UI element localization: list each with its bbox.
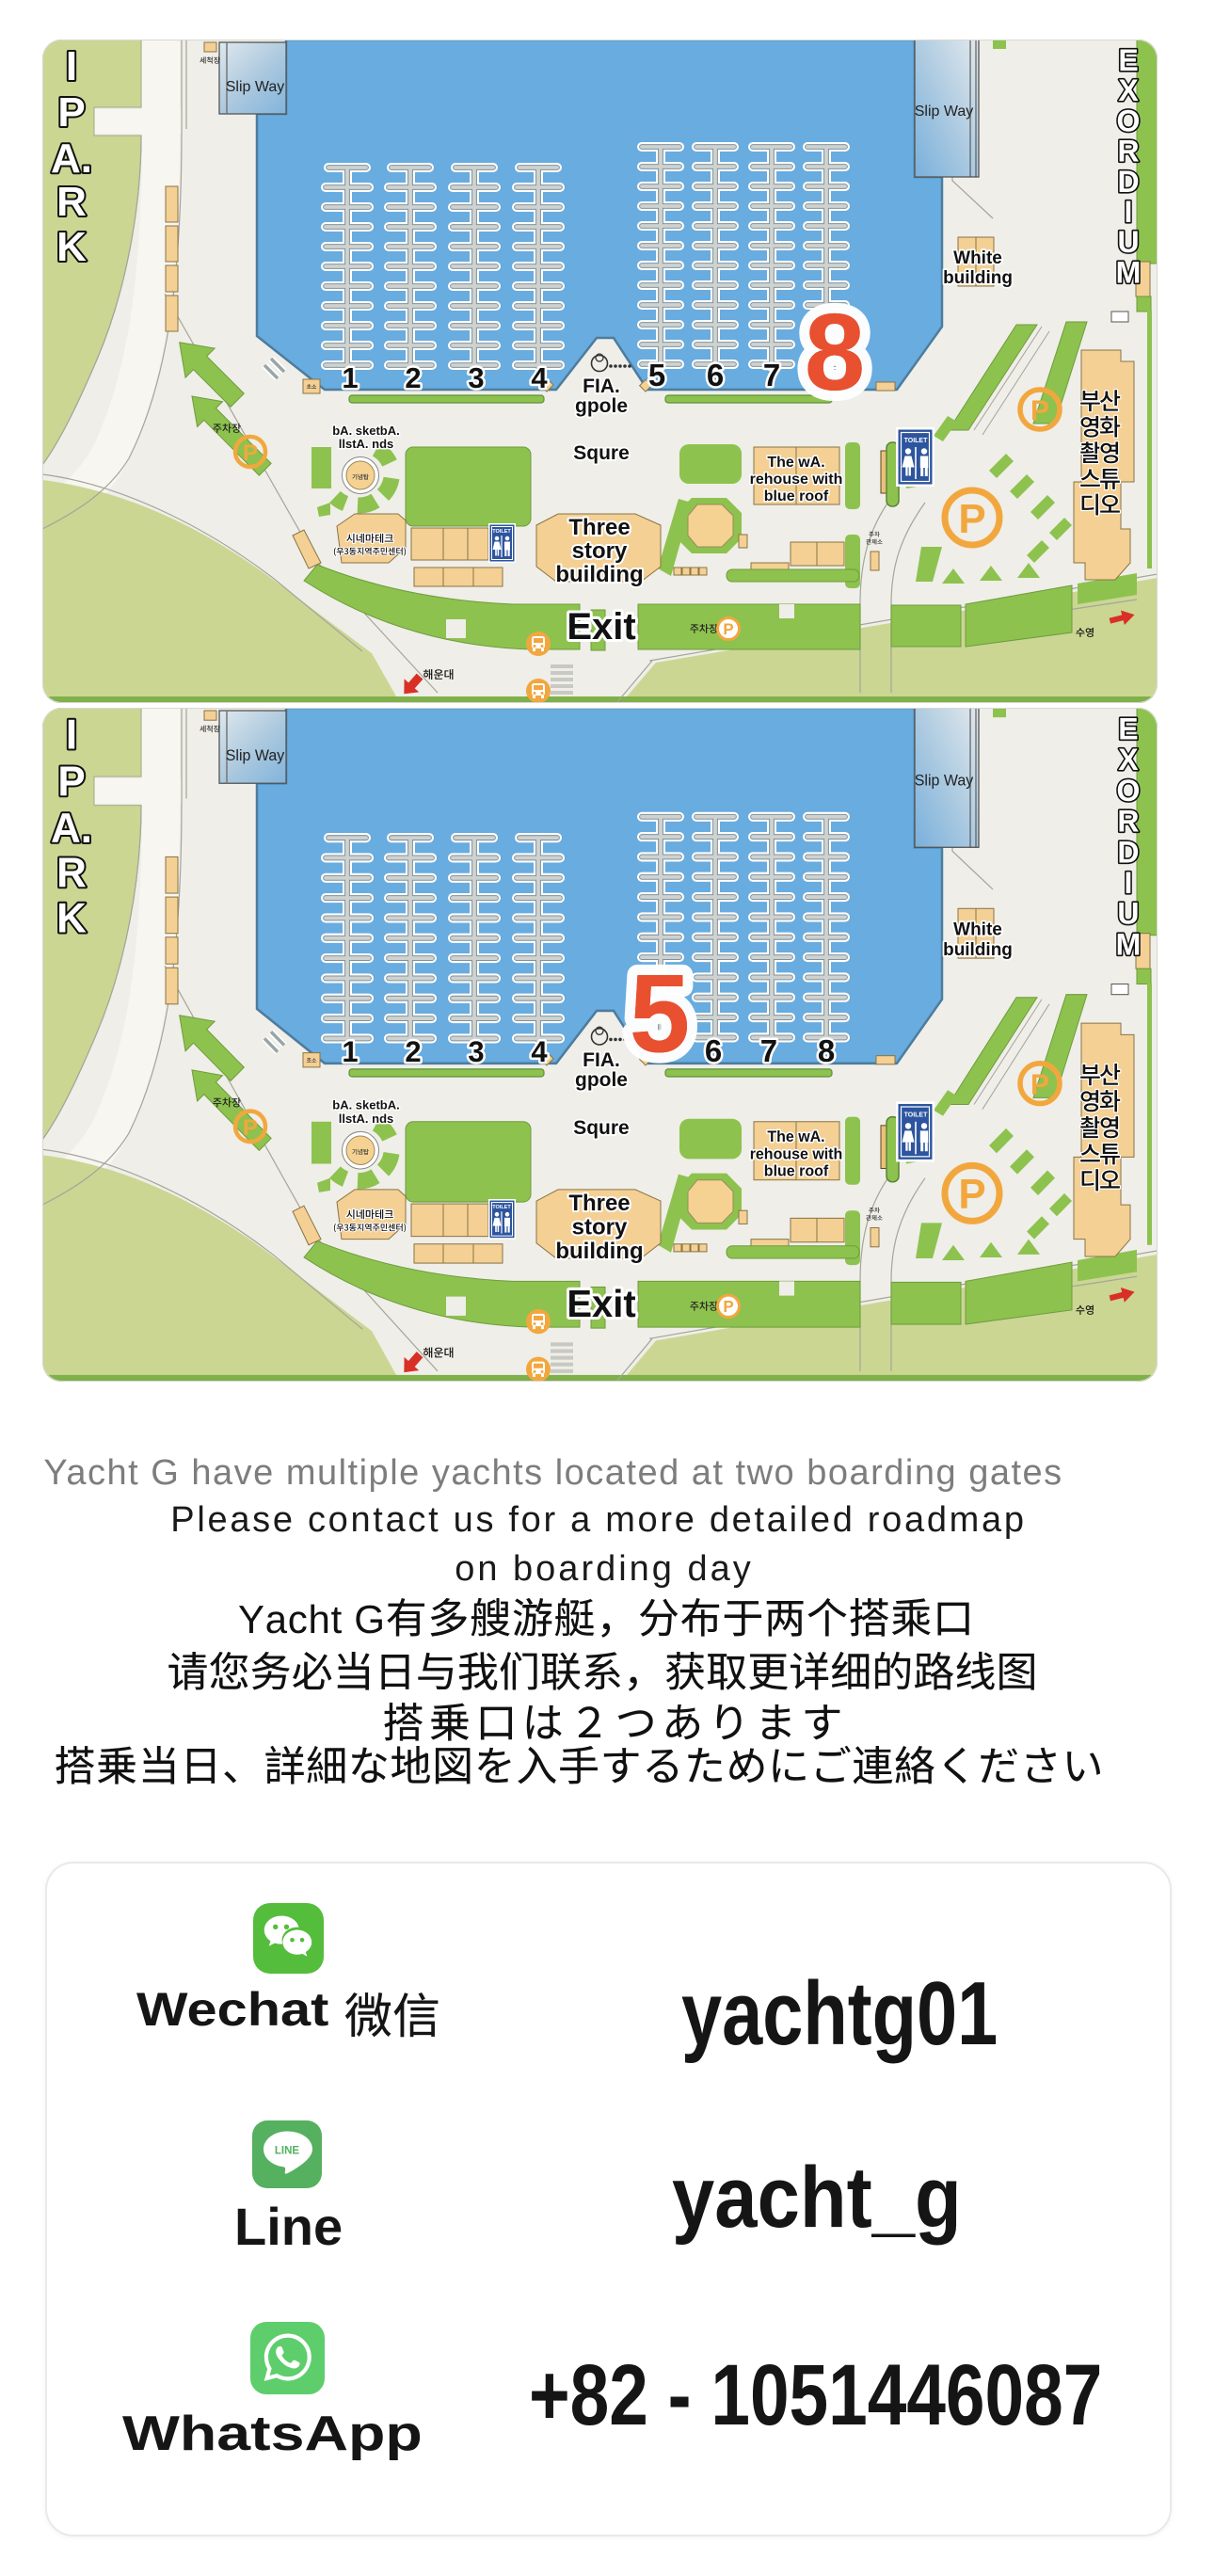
svg-text:LINE: LINE — [275, 2146, 300, 2157]
